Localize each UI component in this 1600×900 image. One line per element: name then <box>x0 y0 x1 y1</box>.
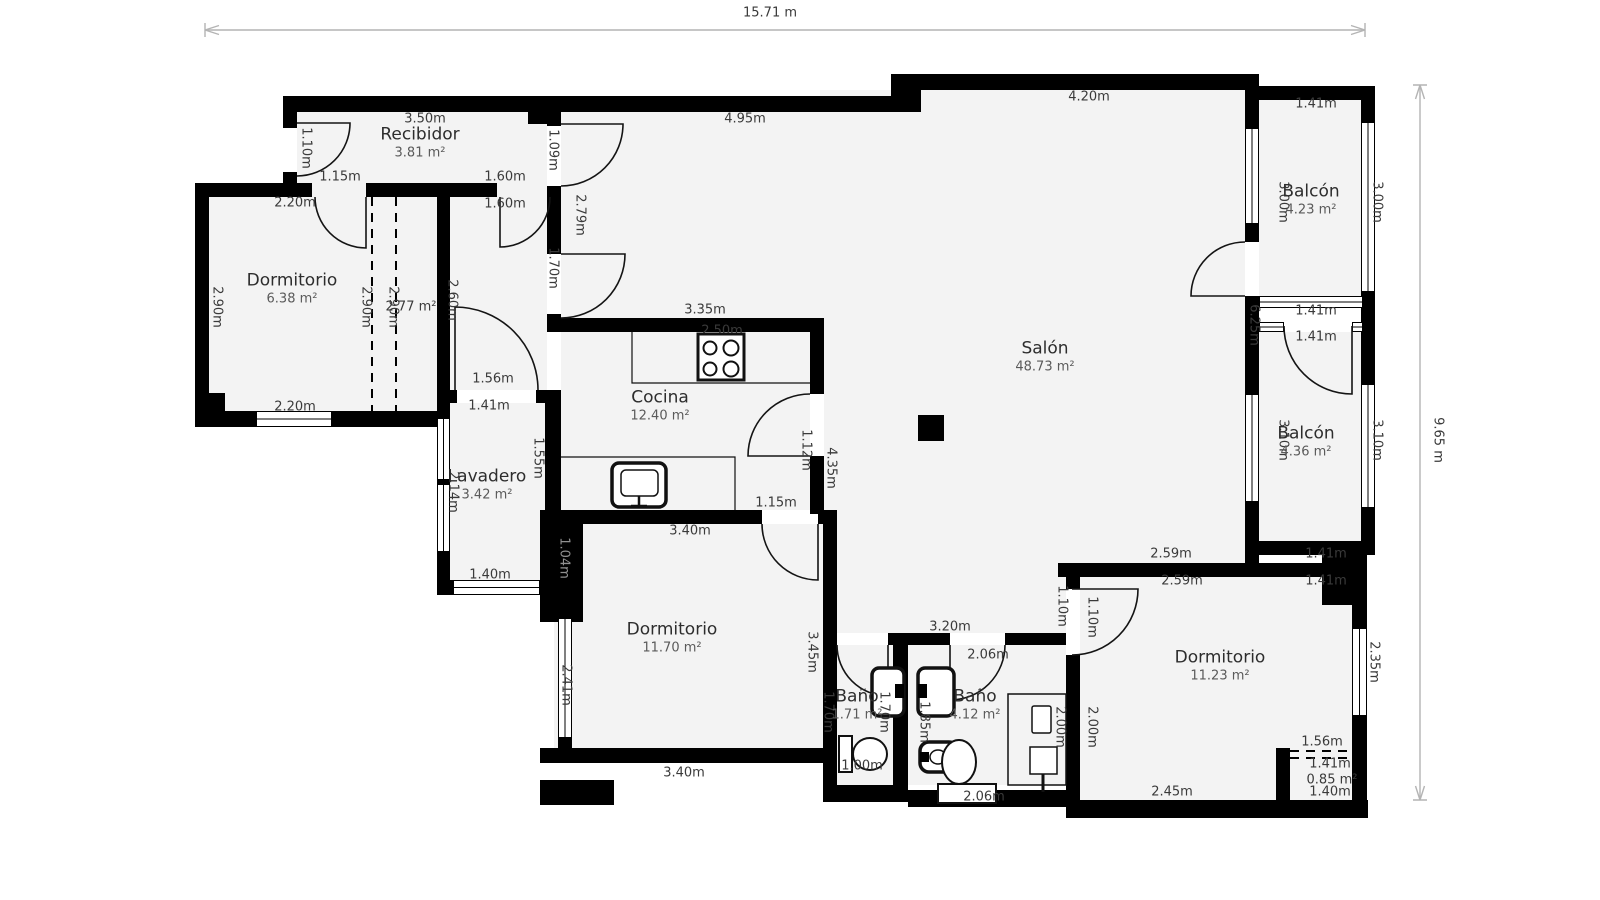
window <box>1352 322 1363 332</box>
dimension-label: 3.40m <box>669 524 711 539</box>
dimension-label: 2.06m <box>967 648 1009 663</box>
room-floor <box>450 197 547 390</box>
wall-segment <box>810 318 824 394</box>
window <box>1245 128 1259 224</box>
room-area: 3.81 m² <box>380 146 459 163</box>
wall-segment <box>1361 340 1375 384</box>
dimension-label: 1.00m <box>841 759 883 774</box>
wall-segment <box>1245 224 1259 242</box>
room-area: 6.38 m² <box>247 292 338 309</box>
room-label: Baño4.12 m² <box>950 686 1001 725</box>
dimension-label: 1.41m <box>1295 97 1337 112</box>
wall-segment <box>1361 508 1375 555</box>
dimension-label: 1.40m <box>469 568 511 583</box>
wall-segment <box>283 96 561 112</box>
top-dimension-arrows <box>205 26 1365 35</box>
wall-segment <box>366 183 497 197</box>
dimension-label: 2.90m <box>359 286 374 328</box>
room-name: Lavadero <box>448 466 527 488</box>
wall-segment <box>561 318 824 332</box>
room-label: Dormitorio11.70 m² <box>627 619 718 658</box>
window <box>1245 394 1259 502</box>
room-area: 3.42 m² <box>448 488 527 505</box>
dimension-label: 4.35m <box>824 447 839 489</box>
room-name: Dormitorio <box>247 270 338 292</box>
dimension-label: 1.09m <box>546 129 561 171</box>
dimension-label: 2.20m <box>274 196 316 211</box>
dimension-label: 3.45m <box>805 631 820 673</box>
room-label: Balcón4.23 m² <box>1282 181 1339 220</box>
room-label: Baño1.71 m² <box>832 686 883 725</box>
room-area: 12.40 m² <box>630 409 689 426</box>
wall-segment <box>547 197 561 254</box>
room-area: 11.23 m² <box>1175 669 1266 686</box>
wall-segment <box>195 183 209 427</box>
top-dimension-ticks <box>205 23 1365 37</box>
wall-segment <box>1361 292 1375 340</box>
room-name: Recibidor <box>380 124 459 146</box>
dimension-label: 4.95m <box>724 112 766 127</box>
dimension-label: 1.56m <box>1301 735 1343 750</box>
dimension-label: 3.00m <box>1370 181 1385 223</box>
wall-segment <box>547 186 561 197</box>
wall-segment <box>561 96 907 112</box>
right-dimension-ticks <box>1413 85 1427 800</box>
room-area: 4.36 m² <box>1277 445 1334 462</box>
room-name: Salón <box>1015 338 1074 360</box>
wall-segment <box>437 390 457 403</box>
dimension-label: 1.41m <box>1305 547 1347 562</box>
room-label: Dormitorio11.23 m² <box>1175 647 1266 686</box>
wall-segment <box>888 633 908 645</box>
dimension-label: 15.71 m <box>743 6 797 21</box>
dimension-label: 1.10m <box>1055 585 1070 627</box>
dimension-label: 3.35m <box>684 303 726 318</box>
wall-segment <box>540 748 834 763</box>
wall-segment <box>893 645 908 790</box>
dimension-label: 1.41m <box>1295 330 1337 345</box>
room-name: Balcón <box>1282 181 1339 203</box>
room-area: 1.71 m² <box>832 708 883 725</box>
dimension-label: 2.45m <box>1151 785 1193 800</box>
room-label: Lavadero3.42 m² <box>448 466 527 505</box>
dimension-label: 2.41m <box>559 664 574 706</box>
room-label: Recibidor3.81 m² <box>380 124 459 163</box>
room-name: Cocina <box>630 387 689 409</box>
dimension-label: 2.06m <box>963 790 1005 805</box>
wall-segment <box>540 780 614 805</box>
dimension-label: 1.41m <box>1305 574 1347 589</box>
dimension-label: 3.20m <box>929 620 971 635</box>
dimension-label: 2.15m <box>624 495 666 510</box>
wall-segment <box>908 633 950 645</box>
room-name: Baño <box>832 686 883 708</box>
room-area: 4.23 m² <box>1282 203 1339 220</box>
dimension-label: 1.04m <box>557 537 572 579</box>
dimension-label: 2.79m <box>573 194 588 236</box>
room-name: Balcón <box>1277 423 1334 445</box>
dimension-label: 3.40m <box>663 766 705 781</box>
dimension-label: 1.41m <box>1295 304 1337 319</box>
wall-segment <box>547 314 561 332</box>
wall-segment <box>918 415 944 441</box>
dimension-label: 2.60m <box>445 279 460 321</box>
room-name: Baño <box>950 686 1001 708</box>
room-label: Balcón4.36 m² <box>1277 423 1334 462</box>
room-area: 11.70 m² <box>627 641 718 658</box>
dimension-label: 2.90m <box>210 286 225 328</box>
dimension-label: 1.56m <box>472 372 514 387</box>
dimension-label: 2.59m <box>1150 547 1192 562</box>
room-area: 4.12 m² <box>950 708 1001 725</box>
dimension-label: 6.25m <box>1247 304 1262 346</box>
dimension-label: 2.77 m² <box>386 300 437 315</box>
dimension-label: 1.85m <box>917 701 932 743</box>
wall-segment <box>1352 716 1367 818</box>
wall-segment <box>547 112 561 126</box>
right-dimension-arrows <box>1416 85 1425 800</box>
dimension-label: 2.00m <box>1085 706 1100 748</box>
wall-segment <box>905 74 1251 90</box>
dimension-label: 1.10m <box>299 127 314 169</box>
wall-segment <box>545 390 561 514</box>
wall-segment <box>1276 748 1290 800</box>
dimension-label: 2.35m <box>1367 641 1382 683</box>
wall-segment <box>1361 86 1375 122</box>
wall-segment <box>1245 502 1259 577</box>
dimension-label: 1.60m <box>484 170 526 185</box>
room-name: Dormitorio <box>627 619 718 641</box>
room-name: Dormitorio <box>1175 647 1266 669</box>
room-label: Dormitorio6.38 m² <box>247 270 338 309</box>
floor-plan: 15.71 m9.65 m3.50m4.95m4.20m1.41m1.10m1.… <box>0 0 1600 900</box>
wall-segment <box>1066 655 1080 818</box>
dimension-label: 3.10m <box>1370 419 1385 461</box>
dimension-label: 2.20m <box>274 400 316 415</box>
wall-segment <box>823 785 908 802</box>
dimension-label: 1.12m <box>799 429 814 471</box>
dimension-label: 2.00m <box>1053 706 1068 748</box>
dimension-label: 1.70m <box>546 247 561 289</box>
wall-segment <box>283 96 297 128</box>
room-area: 48.73 m² <box>1015 360 1074 377</box>
dimension-label: 2.59m <box>1161 574 1203 589</box>
dimension-label: 9.65 m <box>1431 417 1446 463</box>
dimension-label: 1.40m <box>1309 785 1351 800</box>
wall-segment <box>1245 86 1259 128</box>
window <box>1352 628 1367 716</box>
dimension-label: 1.41m <box>1309 757 1351 772</box>
wall-segment <box>330 411 450 427</box>
wall-segment <box>1066 800 1368 818</box>
dimension-label: 4.20m <box>1068 90 1110 105</box>
dimension-label: 1.15m <box>755 496 797 511</box>
dimension-label: 2.50m <box>701 324 743 339</box>
dimension-label: 1.55m <box>531 437 546 479</box>
dimension-label: 1.41m <box>468 399 510 414</box>
dimension-label: 1.15m <box>319 170 361 185</box>
dimension-label: 1.60m <box>484 197 526 212</box>
room-label: Salón48.73 m² <box>1015 338 1074 377</box>
dimension-label: 1.10m <box>1085 596 1100 638</box>
wall-segment <box>195 393 225 427</box>
window <box>1259 322 1284 332</box>
room-label: Cocina12.40 m² <box>630 387 689 426</box>
wall-segment <box>1005 633 1066 645</box>
